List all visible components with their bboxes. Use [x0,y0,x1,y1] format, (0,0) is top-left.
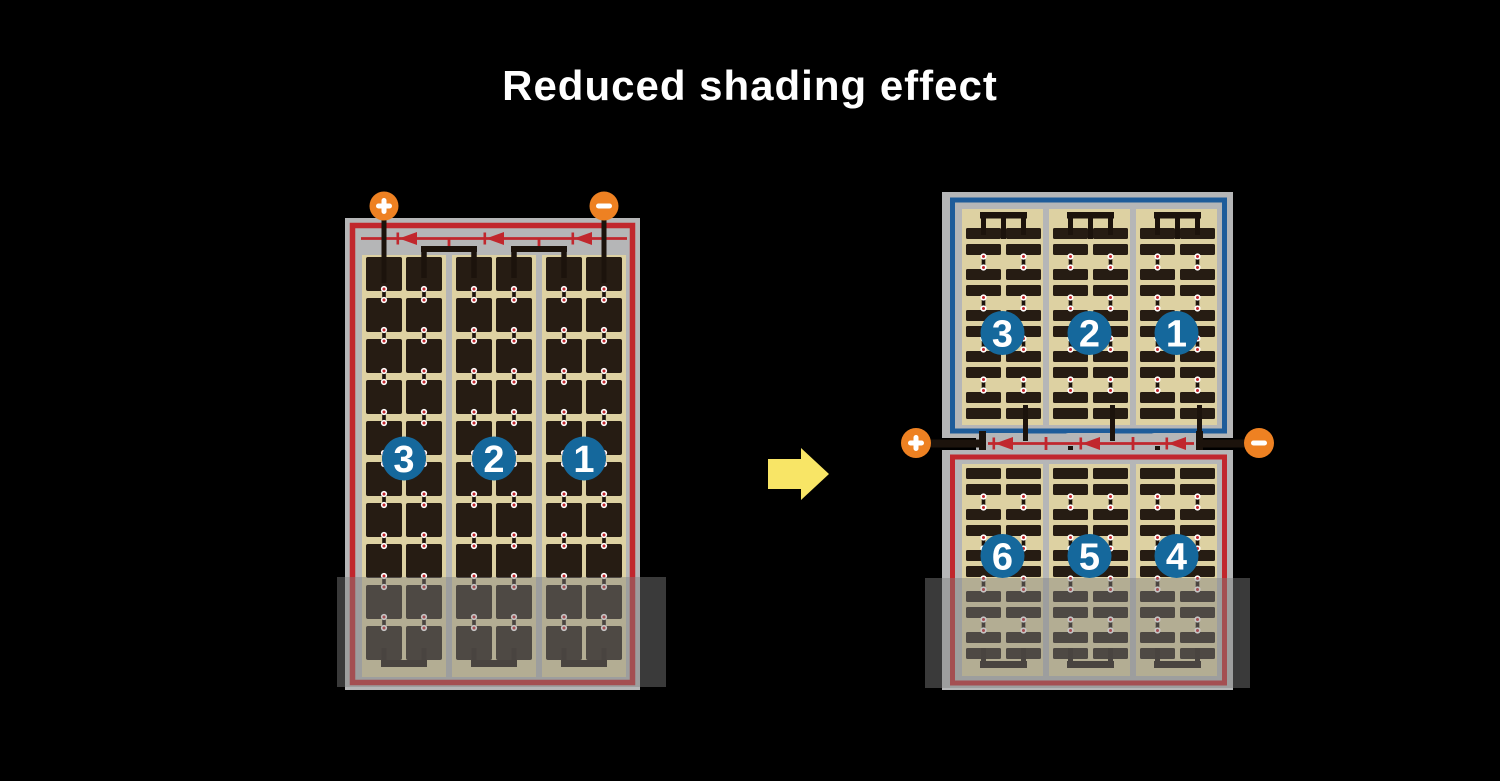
half-cell [1006,525,1041,536]
half-cell [1180,244,1215,255]
half-cell [1006,468,1041,479]
busbar-leg [1021,212,1026,235]
half-cell [1006,509,1041,520]
half-cell [1140,525,1175,536]
half-cell [1053,367,1088,378]
solar-cell [366,380,402,414]
top-jumper-busbar [511,246,567,252]
half-cell [1140,285,1175,296]
minus-terminal [590,192,619,221]
solar-cell [456,339,492,373]
section-divider [1043,209,1049,425]
half-cell [1180,509,1215,520]
half-cell [1006,244,1041,255]
diagram-scene: 321 321654 [0,0,1500,781]
half-cell [966,468,1001,479]
solar-cell [406,298,442,332]
string-stub [1023,405,1028,441]
half-cell [1006,367,1041,378]
section-badge-label: 6 [992,537,1013,579]
busbar-leg [1068,212,1073,235]
section-divider [1130,209,1136,425]
half-cell [966,525,1001,536]
half-cell [1053,244,1088,255]
busbar-leg [1175,212,1180,239]
half-cell [1093,484,1128,495]
half-cell [1053,408,1088,419]
half-cell [1093,244,1128,255]
half-cell [1180,367,1215,378]
solar-cell [546,380,582,414]
terminal-stem [602,214,607,283]
terminal-lead [928,440,984,448]
solar-cell [406,339,442,373]
half-cell [1053,392,1088,403]
right-shading-band [925,578,1250,688]
terminal-stem [382,214,387,283]
solar-cell [496,339,532,373]
busbar-leg [471,246,477,278]
top-jumper-busbar [421,246,477,252]
half-cell [1006,285,1041,296]
left-shading-band [337,577,666,687]
solar-cell [456,380,492,414]
string-stub [1110,405,1115,441]
section-badge-label: 1 [573,439,594,481]
half-cell [1180,468,1215,479]
minus-icon [1251,441,1267,446]
solar-cell [586,380,622,414]
diagram-canvas: Reduced shading effect 321 321654 [0,0,1500,781]
half-cell [1053,484,1088,495]
half-cell [1140,367,1175,378]
solar-cell [546,298,582,332]
half-cell [1140,484,1175,495]
section-badge-label: 2 [1079,314,1100,356]
section-badge-label: 4 [1166,537,1187,579]
section-badge-label: 3 [992,314,1013,356]
solar-cell [546,339,582,373]
half-cell [1180,269,1215,280]
flow-arrow [768,448,829,500]
half-cell [1006,392,1041,403]
half-cell [966,509,1001,520]
half-cell [966,269,1001,280]
half-cell [1006,269,1041,280]
half-cell [1093,525,1128,536]
half-cell [1053,285,1088,296]
half-cell [966,408,1001,419]
solar-cell [496,380,532,414]
solar-cell [586,298,622,332]
half-cell [966,244,1001,255]
solar-cell [586,339,622,373]
half-cell [1140,509,1175,520]
terminal-lead [1196,440,1248,448]
busbar-leg [1088,212,1093,239]
half-cell [1093,285,1128,296]
half-cell [966,392,1001,403]
half-cell [1006,484,1041,495]
minus-terminal [1244,428,1274,458]
half-cell [1093,392,1128,403]
half-cell [1180,392,1215,403]
busbar-leg [421,246,427,278]
half-cell [966,484,1001,495]
half-cell [1093,509,1128,520]
half-cell [1140,392,1175,403]
half-cell [1053,468,1088,479]
half-cell [1180,484,1215,495]
half-cell [1053,525,1088,536]
busbar-leg [511,246,517,278]
half-cell [966,285,1001,296]
minus-icon [596,204,612,209]
right-top-half: 321 [942,192,1233,438]
plus-terminal [901,428,931,458]
section-badge-label: 5 [1079,537,1100,579]
half-cell [1140,468,1175,479]
busbar-leg [1155,212,1160,235]
section-badge-label: 1 [1166,314,1187,356]
half-cell [1093,468,1128,479]
half-cell [1093,269,1128,280]
busbar-leg [561,246,567,278]
half-cell [1140,244,1175,255]
busbar-leg [1195,212,1200,235]
half-cell [1180,525,1215,536]
solar-cell [456,298,492,332]
solar-cell [366,298,402,332]
busbar-leg [1001,212,1006,239]
half-cell [1093,367,1128,378]
half-cell [1180,285,1215,296]
busbar-leg [1108,212,1113,235]
solar-cell [406,380,442,414]
plus-terminal [370,192,399,221]
right-arrow-icon [768,448,829,500]
half-cell [966,367,1001,378]
shading-overlays [337,577,1250,688]
section-badge-label: 3 [393,439,414,481]
half-cell [1140,408,1175,419]
string-stub [1197,405,1202,441]
half-cell [1053,269,1088,280]
half-cell [1053,509,1088,520]
section-badge-label: 2 [483,439,504,481]
half-cell [1140,269,1175,280]
solar-cell [366,339,402,373]
busbar-leg [981,212,986,235]
solar-cell [496,298,532,332]
